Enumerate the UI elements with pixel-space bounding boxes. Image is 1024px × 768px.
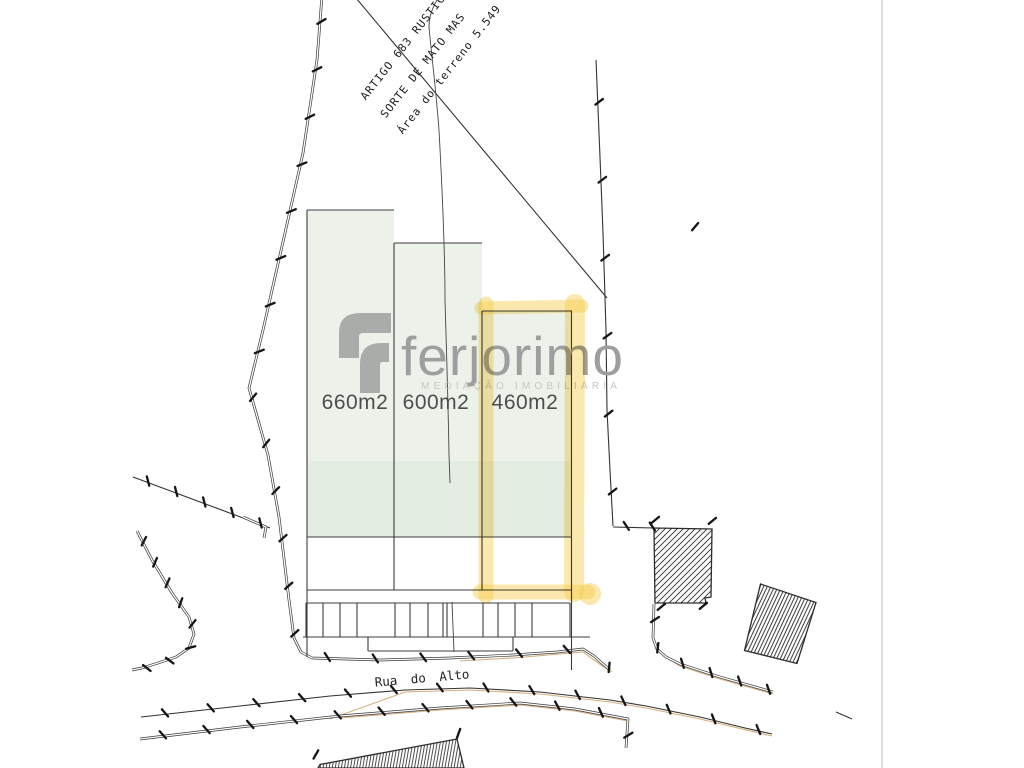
plot-lines <box>307 210 572 670</box>
building-hatched-3 <box>318 739 464 768</box>
ferjorimo-logo-glyph <box>334 305 404 400</box>
plot-lower-band-fill <box>307 461 572 537</box>
building-hatched-2 <box>745 584 817 664</box>
street-label: Rua do Alto <box>374 666 470 689</box>
plot-label-600: 600m2 <box>403 391 470 415</box>
logo-wordmark: ferjorimo <box>401 329 624 384</box>
highlight-blob <box>579 583 601 605</box>
road-tan-underlay <box>330 652 773 748</box>
garage-row-lines <box>303 603 590 651</box>
buildings <box>318 528 816 768</box>
plot-label-460: 460m2 <box>492 391 559 415</box>
site-plan-page: { "annotations": { "artigo": "ARTIGO 683… <box>0 0 1024 768</box>
plot-label-660: 660m2 <box>322 391 389 415</box>
logo-f-mid-bar <box>360 343 389 393</box>
building-hatched-1 <box>654 528 712 603</box>
